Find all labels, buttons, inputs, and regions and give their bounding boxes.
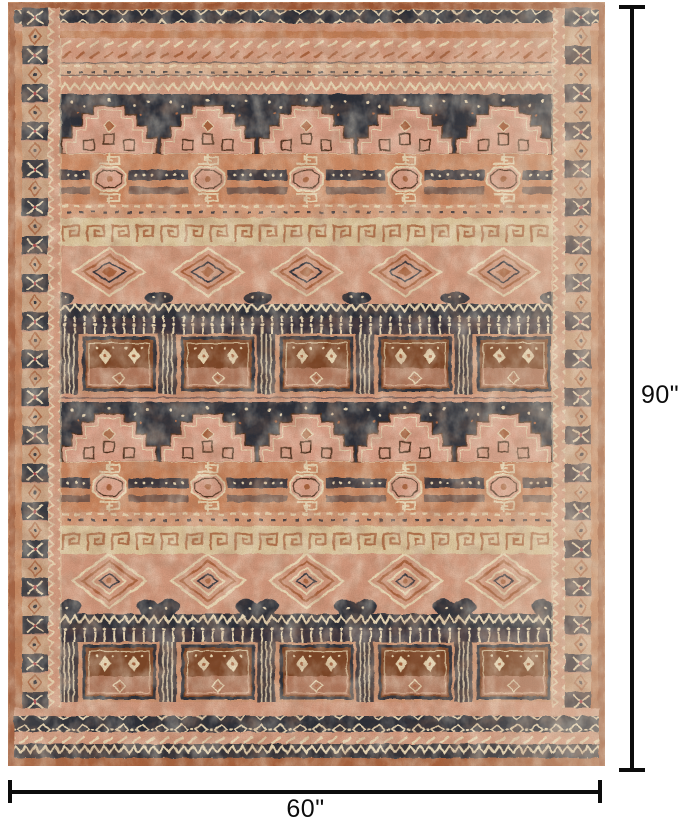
height-dimension-label: 90"	[641, 383, 679, 408]
height-dimension-cap-top	[619, 5, 645, 9]
width-dimension-label: 60"	[10, 797, 601, 821]
width-dimension-line	[10, 790, 600, 794]
height-dimension-cap-bottom	[619, 768, 645, 772]
rug-fade	[8, 2, 605, 766]
rug-image	[8, 2, 605, 766]
height-dimension-line	[630, 6, 634, 769]
rug-product-image: 90" 60"	[0, 0, 679, 821]
